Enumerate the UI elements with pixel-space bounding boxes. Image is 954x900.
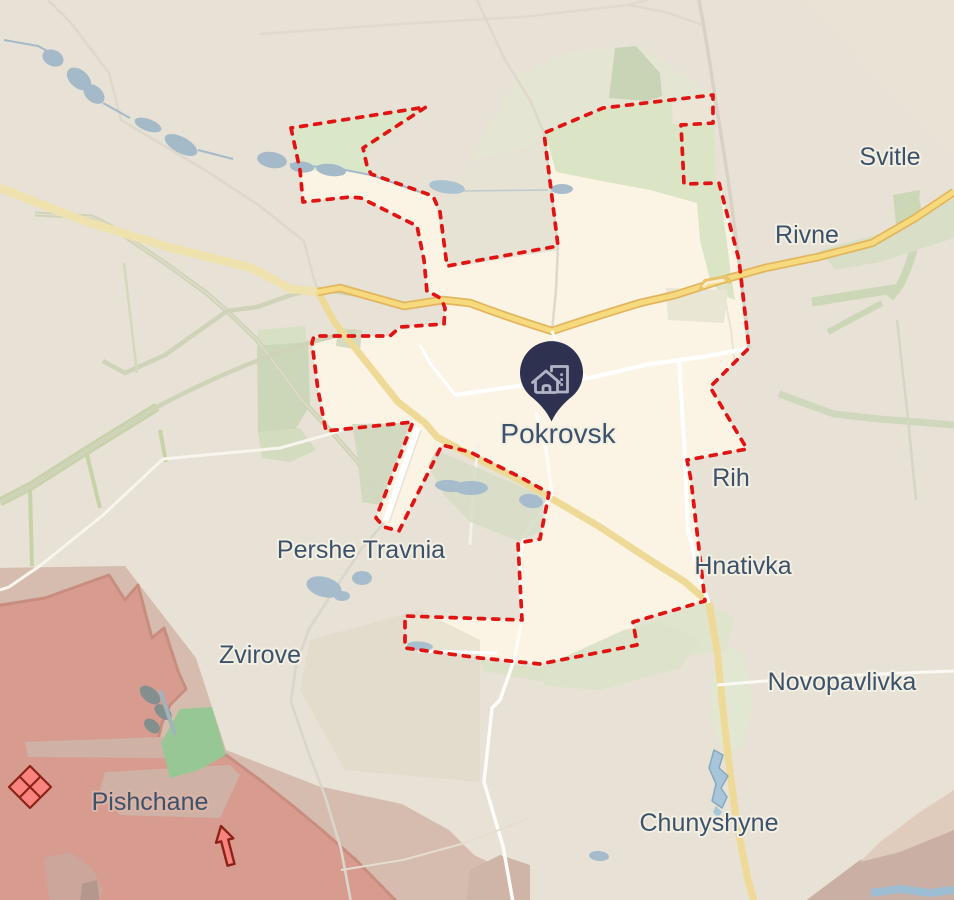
- svg-text:Hnativka: Hnativka: [694, 552, 791, 580]
- svg-text:Chunyshyne: Chunyshyne: [640, 809, 779, 837]
- svg-text:Rih: Rih: [712, 464, 750, 492]
- svg-text:Zvirove: Zvirove: [219, 641, 301, 669]
- svg-text:Pokrovsk: Pokrovsk: [500, 418, 616, 449]
- svg-text:Novopavlivka: Novopavlivka: [768, 668, 917, 696]
- svg-text:Pishchane: Pishchane: [92, 788, 209, 816]
- svg-text:Pershe Travnia: Pershe Travnia: [277, 536, 445, 564]
- svg-text:Rivne: Rivne: [775, 221, 839, 249]
- svg-text:Svitle: Svitle: [859, 143, 920, 171]
